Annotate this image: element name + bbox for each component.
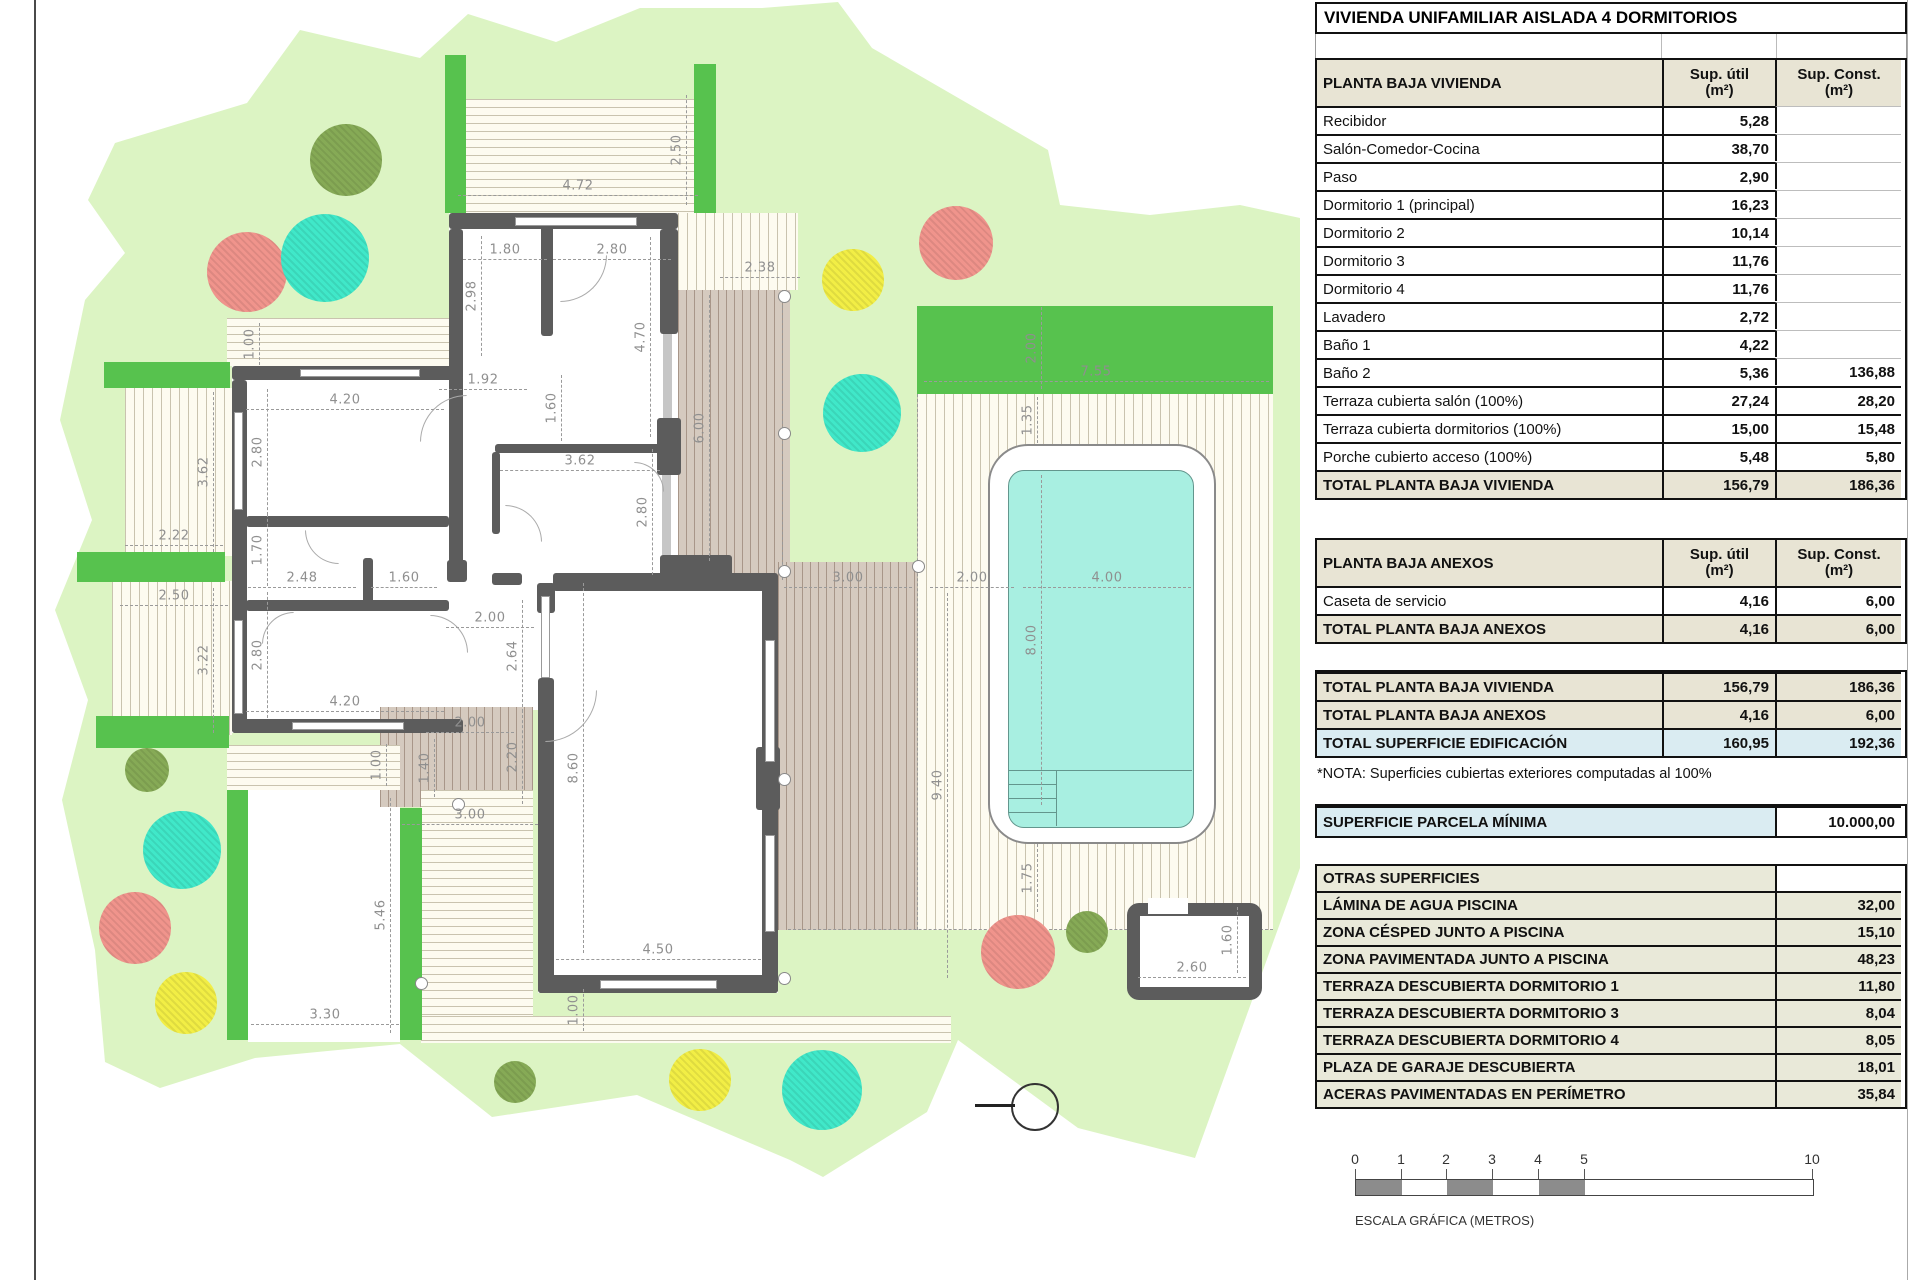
scale-tick-label: 1 [1397,1151,1405,1167]
dimension-label: 7.55 [1081,365,1112,380]
tree-icon [981,915,1055,989]
dimension-line [481,236,482,356]
dimension-label: 5.46 [374,900,389,931]
table-parcela-minima: SUPERFICIE PARCELA MÍNIMA 10.000,00 [1315,804,1907,838]
tree-icon [281,214,369,302]
table-row: Dormitorio 4 11,76 [1317,274,1905,302]
entrance-floor [462,580,538,710]
dimension-label: 3.00 [833,571,864,586]
dimension-line [213,392,214,552]
col-sup-util: Sup. útil(m²) [1662,60,1775,106]
dimension-label: 3.00 [455,808,486,823]
sidewalk-northwest [227,318,462,366]
table-row: Porche cubierto acceso (100%) 5,48 5,80 [1317,442,1905,470]
dimension-label: 2.48 [287,571,318,586]
scale-tick [1401,1169,1402,1179]
dimension-line [251,1024,399,1025]
dimension-label: 2.00 [475,611,506,626]
tree-icon [919,206,993,280]
summary-row: TOTAL SUPERFICIE EDIFICACIÓN 160,95 192,… [1317,728,1905,756]
dimension-line [267,389,268,515]
dimension-label: 4.00 [1092,571,1123,586]
hedge [96,716,229,748]
dimension-line [446,627,534,628]
dimension-label: 2.64 [506,641,521,672]
dimension-line [686,95,687,205]
tree-icon [494,1061,536,1103]
dimension-line [650,237,651,437]
dimension-label: 4.50 [643,943,674,958]
scale-tick-label: 2 [1442,1151,1450,1167]
dimension-line [1041,475,1042,805]
hedge [227,790,248,1040]
dimension-label: 3.62 [197,457,212,488]
gap [1315,782,1907,804]
dimension-label: 2.60 [1177,961,1208,976]
dimension-label: 2.80 [597,243,628,258]
dimension-line [652,449,653,575]
dimension-line [1037,844,1038,912]
dimension-label: 2.22 [159,529,190,544]
dimension-label: 1.92 [468,373,499,388]
gap [1315,838,1907,864]
table-row: TERRAZA DESCUBIERTA DORMITORIO 1 11,80 [1317,972,1905,999]
scale-tick [1355,1169,1356,1179]
table-row: LÁMINA DE AGUA PISCINA 32,00 [1317,891,1905,918]
dimension-line [947,593,948,978]
dimension-label: 4.70 [634,322,649,353]
tree-icon [143,811,221,889]
empty-cell [1775,866,1901,891]
table-row: PLAZA DE GARAJE DESCUBIERTA 18,01 [1317,1053,1905,1080]
table-row: Paso 2,90 [1317,162,1905,190]
dimension-line [556,959,761,960]
table-row: Dormitorio 2 10,14 [1317,218,1905,246]
table-title: PLANTA BAJA ANEXOS [1317,540,1662,586]
table-row: Terraza cubierta salón (100%) 27,24 28,2… [1317,386,1905,414]
table-row: Baño 2 5,36 136,88 [1317,358,1905,386]
tree-icon [125,748,169,792]
dimension-label: 1.35 [1021,405,1036,436]
dimension-line [522,710,523,804]
gap [1315,644,1907,670]
page-title: VIVIENDA UNIFAMILIAR AISLADA 4 DORMITORI… [1315,2,1907,34]
dimension-label: 3.22 [197,645,212,676]
scale-tick [1812,1169,1813,1179]
dimension-label: 1.60 [545,393,560,424]
table-row: Dormitorio 1 (principal) 16,23 [1317,190,1905,218]
scale-tick-label: 3 [1488,1151,1496,1167]
parcela-label: SUPERFICIE PARCELA MÍNIMA [1317,806,1775,836]
service-hut [1127,903,1262,1000]
dimension-line [246,409,444,410]
table-row: ZONA PAVIMENTADA JUNTO A PISCINA 48,23 [1317,945,1905,972]
pool-line [1008,770,1192,771]
site-plan: 2.504.721.802.802.382.981.004.701.924.20… [0,0,1310,1280]
dimension-label: 4.72 [563,179,594,194]
dimension-line [434,739,435,797]
tree-icon [310,124,382,196]
dimension-line [930,587,1014,588]
surface-data-panel: VIVIENDA UNIFAMILIAR AISLADA 4 DORMITORI… [1315,2,1907,1241]
dimension-label: 8.60 [567,753,582,784]
dimension-label: 1.75 [1021,863,1036,894]
tree-icon [155,972,217,1034]
dimension-label: 2.00 [957,571,988,586]
table-row: ACERAS PAVIMENTADAS EN PERÍMETRO 35,84 [1317,1080,1905,1107]
summary-row: TOTAL PLANTA BAJA ANEXOS 4,16 6,00 [1317,700,1905,728]
dimension-label: 1.80 [490,243,521,258]
graphic-scale: ESCALA GRÁFICA (METROS) 01234510 [1355,1151,1825,1241]
pool-step [1056,770,1057,826]
dimension-line [583,989,584,1031]
table-otras-superficies: OTRAS SUPERFICIES LÁMINA DE AGUA PISCINA… [1315,864,1907,1109]
dimension-line [426,732,514,733]
dimension-label: 2.80 [251,640,266,671]
dimension-line [267,514,268,586]
tree-icon [99,892,171,964]
hedge [445,55,466,213]
tree-icon [1066,911,1108,953]
dimension-line [1138,977,1246,978]
summary-row: TOTAL PLANTA BAJA VIVIENDA 156,79 186,36 [1317,672,1905,700]
table-total-row: TOTAL PLANTA BAJA VIVIENDA 156,79 186,36 [1317,470,1905,498]
scale-tick [1538,1169,1539,1179]
dimension-line [1037,397,1038,443]
parcela-value: 10.000,00 [1775,806,1901,836]
dimension-line [1237,907,1238,973]
north-marker-icon [1011,1083,1059,1131]
col-sup-const: Sup. Const.(m²) [1775,60,1901,106]
gap [1315,500,1907,538]
dimension-label: 1.60 [389,571,420,586]
scale-tick [1492,1169,1493,1179]
dimension-label: 8.00 [1025,625,1040,656]
dimension-line [463,259,547,260]
table-row: Recibidor 5,28 [1317,106,1905,134]
table-row: Salón-Comedor-Cocina 38,70 [1317,134,1905,162]
dimension-label: 2.98 [465,281,480,312]
dimension-label: 2.00 [1025,333,1040,364]
col-sup-util: Sup. útil(m²) [1662,540,1775,586]
dimension-line [390,798,391,1033]
scale-caption: ESCALA GRÁFICA (METROS) [1355,1213,1534,1228]
dimension-line [784,587,912,588]
dimension-line [522,600,523,712]
dimension-label: 2.38 [745,261,776,276]
sidewalk-south [421,1016,951,1043]
dimension-line [386,744,387,786]
dimension-line [246,711,444,712]
table-planta-baja-anexos: PLANTA BAJA ANEXOS Sup. útil(m²) Sup. Co… [1315,538,1907,644]
dimension-label: 1.00 [567,995,582,1026]
dimension-label: 1.00 [243,329,258,360]
dimension-line [553,259,671,260]
dimension-label: 1.60 [1221,925,1236,956]
dimension-line [500,470,660,471]
spacer-row [1315,34,1907,58]
pool-step [1008,798,1056,799]
pool-step [1008,812,1056,813]
dimension-line [402,824,538,825]
tree-icon [823,374,901,452]
scale-tick-label: 4 [1534,1151,1542,1167]
dimension-label: 9.40 [931,770,946,801]
hedge [77,552,225,582]
nota-text: *NOTA: Superficies cubiertas exteriores … [1315,758,1907,782]
dimension-label: 3.62 [565,454,596,469]
dimension-label: 2.80 [636,497,651,528]
tree-icon [822,249,884,311]
deck-boundary [917,394,918,930]
table-title: OTRAS SUPERFICIES [1317,866,1775,891]
tree-icon [207,232,287,312]
table-row: Caseta de servicio 4,16 6,00 [1317,586,1905,614]
dimension-line [439,389,527,390]
dimension-line [583,583,584,953]
scale-tick-label: 10 [1804,1151,1820,1167]
dimension-line [248,587,356,588]
col-sup-const: Sup. Const.(m²) [1775,540,1901,586]
scale-tick [1446,1169,1447,1179]
dimension-line [371,587,437,588]
sheet-edge-line [1907,0,1908,1280]
dimension-line [267,592,268,718]
pool-step [1008,784,1056,785]
dimension-label: 2.80 [251,437,266,468]
scale-tick-label: 0 [1351,1151,1359,1167]
table-row: ZONA CÉSPED JUNTO A PISCINA 15,10 [1317,918,1905,945]
table-title: PLANTA BAJA VIVIENDA [1317,60,1662,106]
scale-bar [1355,1179,1814,1196]
dimension-line [458,195,698,196]
table-row: Dormitorio 3 11,76 [1317,246,1905,274]
dimension-line [561,375,562,441]
hedge [400,808,422,1040]
north-marker-line [975,1104,1015,1107]
table-planta-baja-vivienda: PLANTA BAJA VIVIENDA Sup. útil(m²) Sup. … [1315,58,1907,500]
dimension-label: 6.00 [693,413,708,444]
dimension-label: 2.50 [670,135,685,166]
table-resumen: TOTAL PLANTA BAJA VIVIENDA 156,79 186,36… [1315,670,1907,758]
table-row: Lavadero 2,72 [1317,302,1905,330]
caseta-door-gap [1148,898,1188,914]
scale-tick [1584,1169,1585,1179]
table-row: Baño 1 4,22 [1317,330,1905,358]
dimension-line [709,295,710,561]
dimension-label: 1.40 [418,753,433,784]
table-row: Terraza cubierta dormitorios (100%) 15,0… [1317,414,1905,442]
table-row: TERRAZA DESCUBIERTA DORMITORIO 3 8,04 [1317,999,1905,1026]
dimension-line [1023,587,1191,588]
dimension-line [213,588,214,733]
dimension-label: 2.20 [506,742,521,773]
table-total-row: TOTAL PLANTA BAJA ANEXOS 4,16 6,00 [1317,614,1905,642]
dimension-line [720,277,800,278]
dimension-label: 2.50 [159,589,190,604]
dimension-line [1041,307,1042,389]
tree-icon [782,1050,862,1130]
terrace-dorm-north [678,213,798,290]
dimension-line [924,381,1269,382]
dimension-label: 4.20 [330,695,361,710]
scale-tick-label: 5 [1580,1151,1588,1167]
dimension-label: 1.00 [370,750,385,781]
dimension-line [125,545,223,546]
table-row: TERRAZA DESCUBIERTA DORMITORIO 4 8,05 [1317,1026,1905,1053]
hedge [104,362,230,388]
dimension-label: 1.70 [251,535,266,566]
dimension-label: 4.20 [330,393,361,408]
dimension-label: 3.30 [310,1008,341,1023]
dimension-line [120,605,228,606]
dimension-line [259,323,260,365]
dimension-label: 2.00 [455,716,486,731]
tree-icon [669,1049,731,1111]
hedge [694,64,716,213]
paved-zone-pool [778,562,917,930]
living-room-floor [538,575,778,993]
